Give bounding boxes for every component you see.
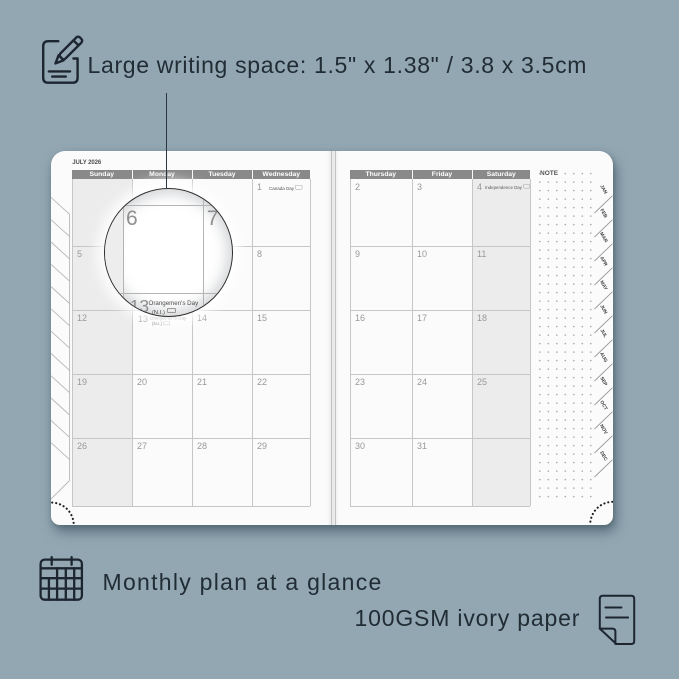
svg-text:JUN: JUN (598, 304, 608, 316)
svg-text:SEP: SEP (598, 376, 608, 388)
svg-text:APR: APR (598, 256, 609, 268)
svg-text:DEC: DEC (598, 450, 609, 462)
svg-text:AUG: AUG (598, 351, 609, 363)
svg-text:OCT: OCT (598, 400, 608, 412)
svg-text:JAN: JAN (598, 184, 608, 196)
svg-text:NOV: NOV (598, 423, 609, 436)
svg-text:MAY: MAY (598, 280, 609, 293)
svg-text:FEB: FEB (598, 208, 608, 220)
svg-text:MAR: MAR (598, 231, 609, 244)
svg-text:JUL: JUL (599, 328, 609, 339)
